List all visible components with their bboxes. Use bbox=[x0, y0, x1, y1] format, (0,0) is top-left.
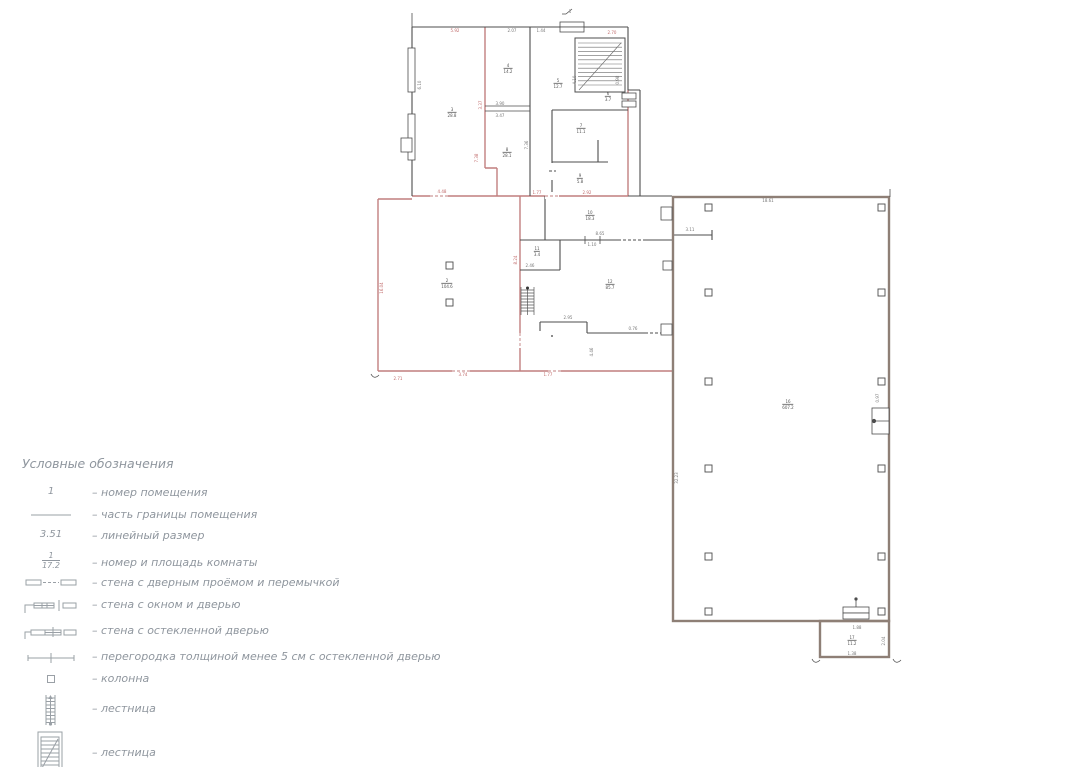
hall-outline bbox=[673, 197, 889, 657]
legend-label: – номер и площадь комнаты bbox=[92, 556, 257, 569]
floor-plan-page: 5.922.071.442.7016.103.373.903.477.364.1… bbox=[0, 0, 1089, 767]
legend-label: – стена с дверным проёмом и перемычкой bbox=[92, 576, 340, 589]
thin-partition-icon bbox=[26, 652, 76, 664]
stair-straight-plan bbox=[521, 287, 534, 316]
stairwell-icon bbox=[36, 730, 66, 767]
legend-label: – лестница bbox=[92, 702, 156, 715]
legend-label: – часть границы помещения bbox=[92, 508, 257, 521]
linear-dimension-symbol: 3.51 bbox=[20, 529, 82, 540]
lintel-dashes bbox=[430, 171, 662, 371]
legend-title: Условные обозначения bbox=[22, 456, 174, 471]
room-number-symbol: 1 bbox=[20, 486, 82, 497]
wall-glazed-door-icon bbox=[22, 624, 80, 642]
legend-label: – лестница bbox=[92, 746, 156, 759]
legend-label: – стена с остекленной дверью bbox=[92, 624, 269, 637]
wall-door-lintel-icon bbox=[24, 576, 78, 590]
stair-straight-icon bbox=[42, 692, 60, 728]
boundary-line-icon bbox=[29, 512, 73, 518]
wall-window-door-icon bbox=[22, 598, 80, 616]
legend-label: – линейный размер bbox=[92, 529, 204, 542]
legend-label: – колонна bbox=[92, 672, 149, 685]
walls-dark bbox=[412, 27, 712, 333]
legend-label: – номер помещения bbox=[92, 486, 208, 499]
legend-label: – перегородка толщиной менее 5 см с осте… bbox=[92, 650, 441, 663]
door-openings bbox=[430, 163, 662, 375]
column-icon bbox=[46, 674, 56, 684]
stairwell-icon-plan bbox=[578, 43, 622, 90]
room-area-fraction-symbol: 1 17.2 bbox=[42, 552, 60, 570]
legend-label: – стена с окном и дверью bbox=[92, 598, 241, 611]
window-symbols bbox=[401, 22, 889, 619]
